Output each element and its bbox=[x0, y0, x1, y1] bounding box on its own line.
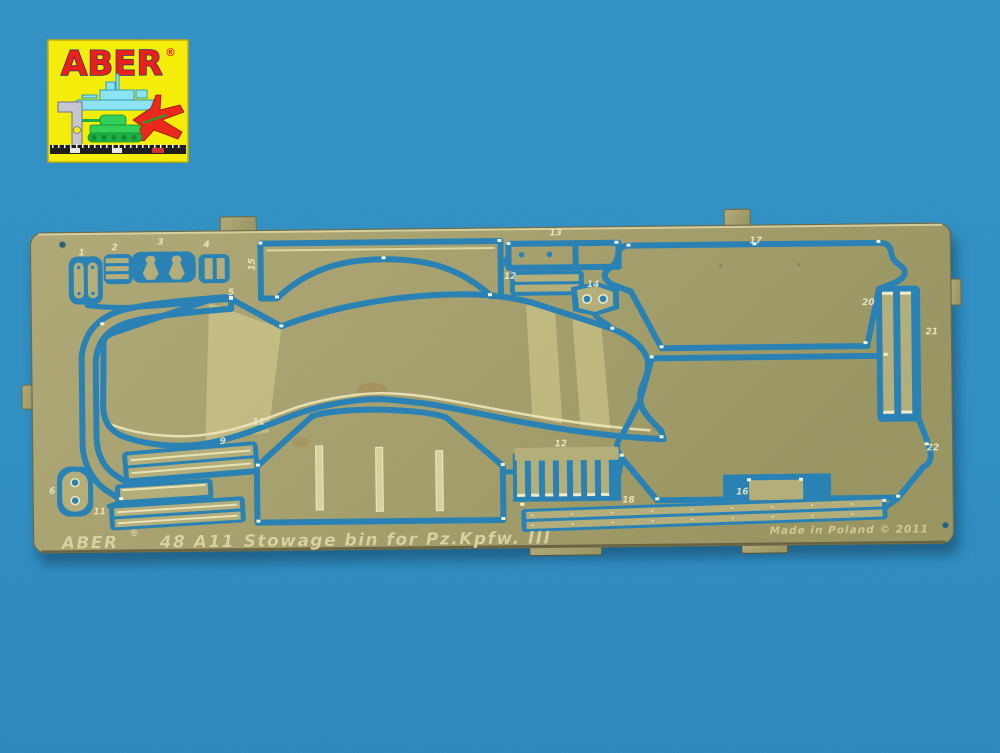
part-label: 18 bbox=[622, 496, 635, 506]
photo-canvas: 1 2 3 4 15 5 13 12 14 17 20 21 9 11 6 11… bbox=[0, 0, 1000, 753]
part-label: 12 bbox=[555, 439, 568, 449]
part-label: 22 bbox=[927, 443, 940, 453]
part-label: 11 bbox=[93, 507, 106, 517]
etched-set-number: 48 A11 bbox=[159, 532, 236, 553]
etched-copyright: © 2011 bbox=[879, 523, 929, 536]
etched-origin: Made in Poland bbox=[769, 524, 874, 537]
part-label: 1 bbox=[78, 248, 84, 258]
part-label: 2 bbox=[111, 243, 117, 253]
fret-hole bbox=[59, 241, 65, 247]
part-label: 21 bbox=[925, 327, 938, 337]
part-3-cutout bbox=[132, 251, 196, 283]
parts-20-21-strips bbox=[876, 285, 921, 421]
part-label: 6 bbox=[49, 487, 55, 497]
part-label: 13 bbox=[549, 228, 562, 238]
part-4-cutout bbox=[199, 254, 230, 283]
part-label: 20 bbox=[862, 298, 875, 308]
fret-hole bbox=[942, 522, 948, 528]
part-12-comb bbox=[513, 447, 622, 502]
part-label: 9 bbox=[220, 437, 226, 447]
ruler-icon bbox=[50, 145, 186, 154]
part-label: 3 bbox=[157, 238, 163, 248]
part-label: 16 bbox=[736, 487, 749, 497]
logo-registered-mark: ® bbox=[165, 46, 176, 59]
etched-registered-mark: ® bbox=[130, 529, 139, 539]
aber-logo: ABER ® bbox=[48, 40, 188, 162]
part-label: 17 bbox=[749, 236, 762, 246]
photo-etched-fret: 1 2 3 4 15 5 13 12 14 17 20 21 9 11 6 11… bbox=[20, 207, 964, 565]
part-6-oval bbox=[57, 466, 94, 516]
part-label: 5 bbox=[228, 288, 234, 298]
part-label: 11 bbox=[252, 418, 265, 428]
part-label: 15 bbox=[248, 258, 258, 271]
product-photo-scene: 1 2 3 4 15 5 13 12 14 17 20 21 9 11 6 11… bbox=[0, 0, 1000, 753]
part-label: 12 bbox=[504, 272, 517, 282]
part-1-cutout bbox=[69, 256, 104, 304]
part-label: 14 bbox=[587, 280, 600, 290]
etched-brand: ABER bbox=[60, 533, 119, 554]
part-label: 4 bbox=[202, 240, 209, 250]
logo-brand-text: ABER bbox=[61, 44, 163, 84]
